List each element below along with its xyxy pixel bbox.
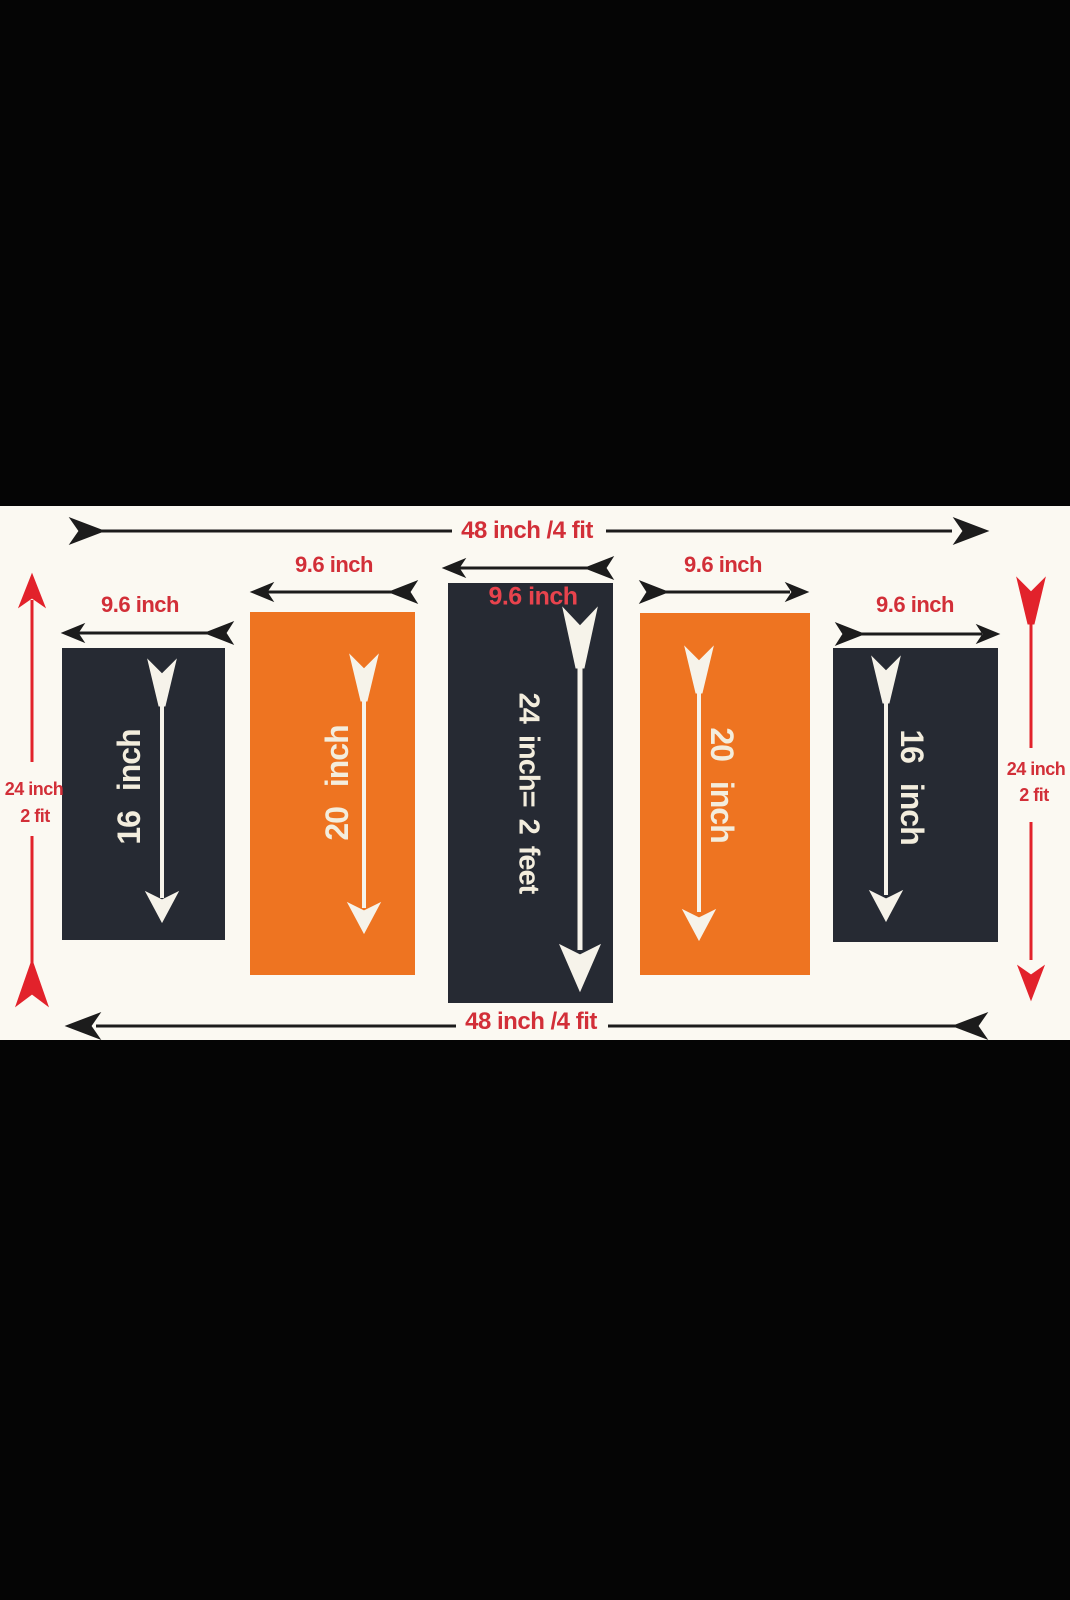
left-height-label-line1: 24 inch bbox=[5, 780, 64, 798]
panel-left-width-label: 9.6 inch bbox=[295, 554, 373, 576]
right-height-label-line2: 2 fit bbox=[1019, 786, 1049, 804]
diagram-root: 48 inch /4 fit 48 inch /4 fit 24 inch 2 … bbox=[0, 0, 1070, 1600]
panel-left-height-label: 20 inch bbox=[321, 725, 353, 840]
panel-far-right-height-label: 16 inch bbox=[896, 729, 928, 844]
left-height-label-line2: 2 fit bbox=[20, 807, 50, 825]
bottom-width-label: 48 inch /4 fit bbox=[465, 1010, 597, 1034]
panel-right-width-label: 9.6 inch bbox=[684, 554, 762, 576]
panel-center-width-label: 9.6 inch bbox=[488, 585, 577, 610]
right-height-label-line1: 24 inch bbox=[1007, 760, 1066, 778]
panel-far-left-width-label: 9.6 inch bbox=[101, 594, 179, 616]
top-width-label: 48 inch /4 fit bbox=[461, 519, 593, 543]
panel-far-left-height-label: 16 inch bbox=[113, 729, 145, 844]
panel-center-height-label: 24 inch= 2 feet bbox=[514, 693, 543, 894]
panel-right-height-label: 20 inch bbox=[706, 727, 738, 842]
panel-far-right-width-label: 9.6 inch bbox=[876, 594, 954, 616]
